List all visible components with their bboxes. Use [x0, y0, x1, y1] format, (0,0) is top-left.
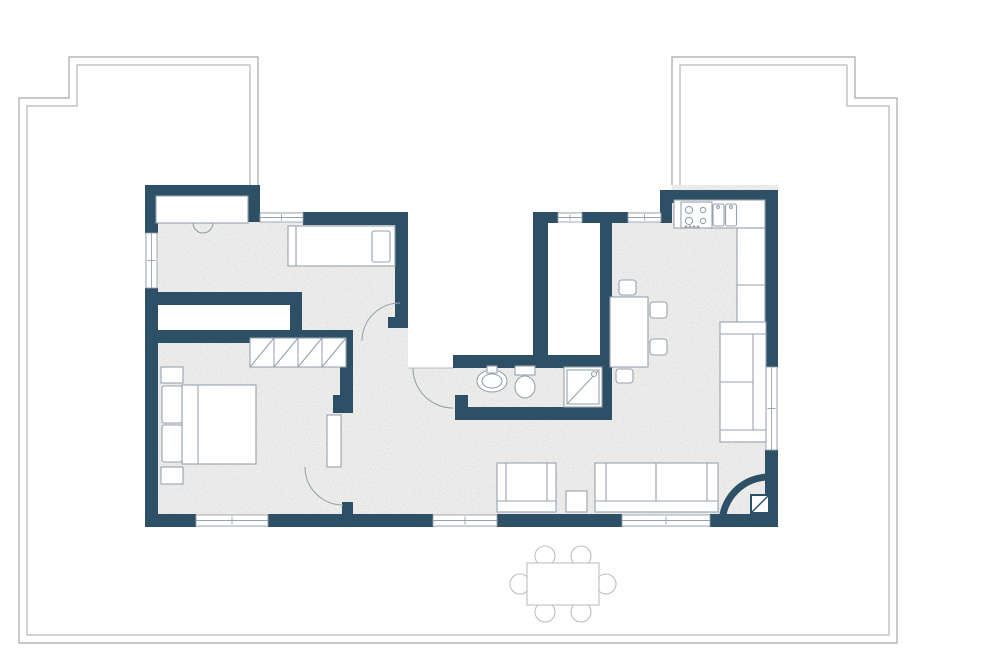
terrace-gap-left	[258, 185, 412, 212]
wall	[342, 502, 353, 514]
terrace-gap-right	[533, 185, 672, 212]
bathroom-tap	[487, 366, 497, 373]
stove-knob	[693, 226, 695, 228]
dining-chair	[616, 369, 633, 383]
dining-table	[610, 297, 648, 367]
stove-knob	[697, 226, 699, 228]
stove-burner	[700, 207, 705, 212]
outdoor-table	[527, 563, 599, 605]
wall	[290, 292, 302, 336]
terrace-notch	[408, 185, 537, 368]
wall	[388, 317, 408, 328]
window-top-living	[628, 213, 661, 222]
bed-pillow	[162, 386, 182, 423]
window-top-bedroom	[260, 213, 303, 222]
window-right-sofa	[766, 367, 777, 450]
sink-faucet	[717, 206, 720, 209]
wall	[765, 190, 778, 367]
side-table	[566, 491, 587, 512]
wardrobe-niche	[156, 196, 248, 223]
sink-faucet	[730, 206, 733, 209]
wall	[395, 212, 408, 317]
stove-knob	[689, 226, 691, 228]
wall	[333, 395, 353, 413]
dining-chair	[619, 280, 636, 295]
shaft-room	[541, 218, 603, 358]
window-left-bedroom	[146, 233, 157, 288]
single-bed-pillow	[372, 231, 390, 262]
door-leaf-master	[327, 415, 341, 467]
bed-pillow	[162, 425, 182, 462]
nightstand	[161, 467, 183, 484]
wall	[455, 407, 612, 420]
toilet-bowl	[515, 376, 535, 398]
wall	[533, 212, 548, 368]
window-bottom-bedroom	[196, 515, 268, 526]
shower-head	[592, 372, 597, 377]
nightstand	[161, 367, 183, 383]
dining-chair	[650, 339, 667, 355]
window-top-shaft	[558, 213, 582, 222]
stove-burner	[685, 217, 692, 224]
wall	[533, 212, 558, 223]
stove	[681, 202, 712, 228]
wall	[303, 212, 408, 225]
stove-burner	[700, 218, 705, 223]
stove-knob	[685, 226, 687, 228]
wall	[145, 514, 196, 527]
stove-burner	[685, 206, 692, 213]
wall	[268, 514, 433, 527]
window-bottom-living-left	[433, 515, 497, 526]
toilet-tank	[515, 366, 535, 375]
floor-plan-page	[0, 0, 1000, 659]
wall	[582, 212, 628, 223]
double-bed	[182, 385, 256, 464]
wall	[145, 292, 302, 305]
wall	[497, 514, 622, 527]
wall	[660, 190, 672, 223]
dining-chair	[650, 302, 667, 318]
bathroom-sink-basin	[482, 374, 502, 388]
wall	[145, 288, 158, 517]
window-bottom-living-right	[622, 515, 710, 526]
floor-plan-drawing	[0, 0, 1000, 659]
